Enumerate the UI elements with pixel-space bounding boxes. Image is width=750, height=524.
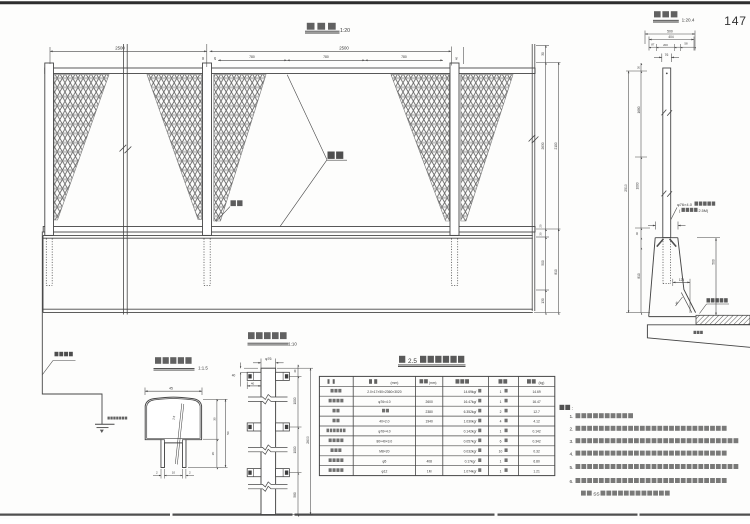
svg-text:30: 30 — [212, 417, 216, 421]
svg-text:1940: 1940 — [426, 420, 434, 424]
svg-text:2.5M): 2.5M) — [699, 209, 709, 213]
svg-text:0.32: 0.32 — [533, 449, 540, 453]
svg-text:1: 1 — [500, 390, 502, 394]
svg-text:1M: 1M — [427, 469, 432, 473]
svg-text:(kg): (kg) — [539, 381, 545, 385]
svg-text:0.342: 0.342 — [532, 440, 540, 444]
svg-text:2.0×17×50×2360×3020: 2.0×17×50×2360×3020 — [367, 390, 401, 394]
svg-text:810: 810 — [554, 269, 558, 275]
svg-text:1:20: 1:20 — [340, 28, 350, 34]
svg-text:408: 408 — [426, 459, 432, 463]
svg-text:0.17kg/: 0.17kg/ — [465, 459, 476, 463]
svg-text:14.69kg/: 14.69kg/ — [464, 390, 477, 394]
svg-text:500: 500 — [712, 259, 716, 265]
svg-text:2: 2 — [500, 410, 502, 414]
svg-text:(mm): (mm) — [391, 381, 399, 385]
svg-text:40×2.0: 40×2.0 — [379, 420, 389, 424]
svg-text:45: 45 — [169, 386, 173, 390]
svg-text:500: 500 — [541, 260, 545, 266]
svg-text:87: 87 — [651, 43, 655, 47]
svg-text:1000: 1000 — [293, 446, 297, 453]
svg-text:20: 20 — [211, 452, 215, 456]
svg-text:1:10: 1:10 — [288, 341, 297, 346]
svg-text:2510: 2510 — [624, 184, 628, 192]
svg-text:130: 130 — [541, 298, 545, 304]
svg-text:1:20.4: 1:20.4 — [682, 18, 695, 23]
svg-text:14.69: 14.69 — [532, 390, 540, 394]
svg-text:780: 780 — [323, 55, 329, 59]
svg-text:2500: 2500 — [115, 46, 125, 51]
svg-text:6.352kg/: 6.352kg/ — [464, 410, 477, 414]
svg-text:40: 40 — [293, 369, 297, 373]
svg-text:1.074kg/: 1.074kg/ — [464, 469, 477, 473]
svg-text:10: 10 — [499, 449, 503, 453]
svg-text:2.5: 2.5 — [408, 358, 417, 365]
svg-text:16.47kg/: 16.47kg/ — [464, 400, 477, 404]
svg-text:780: 780 — [249, 55, 255, 59]
svg-text:(mm): (mm) — [429, 381, 436, 385]
svg-text::: : — [572, 406, 573, 412]
svg-text:76: 76 — [665, 53, 669, 57]
svg-text:780: 780 — [401, 55, 407, 59]
svg-text:20: 20 — [213, 57, 217, 61]
svg-text:1.21: 1.21 — [533, 469, 540, 473]
svg-text:50: 50 — [226, 431, 230, 435]
svg-text:404: 404 — [668, 35, 674, 39]
svg-text:SS: SS — [593, 491, 599, 497]
svg-text:1: 1 — [500, 430, 502, 434]
svg-text:4.: 4. — [570, 451, 574, 457]
svg-text:16.47: 16.47 — [532, 400, 540, 404]
svg-text:30: 30 — [539, 232, 543, 236]
svg-text:φ76×4.0: φ76×4.0 — [677, 202, 693, 207]
svg-text:0.142: 0.142 — [532, 430, 540, 434]
svg-text:1000: 1000 — [293, 397, 297, 404]
svg-text:6: 6 — [500, 440, 502, 444]
svg-text:40: 40 — [232, 374, 236, 378]
svg-text:12.7: 12.7 — [533, 410, 540, 414]
svg-text:2630: 2630 — [541, 142, 545, 149]
svg-text:810: 810 — [637, 273, 641, 279]
svg-text:10: 10 — [172, 471, 176, 475]
svg-text:2100: 2100 — [554, 142, 558, 149]
svg-text:1680: 1680 — [637, 106, 641, 113]
svg-text:4.12: 4.12 — [533, 420, 540, 424]
svg-text:1: 1 — [500, 400, 502, 404]
svg-text:40: 40 — [635, 232, 639, 236]
svg-text:500: 500 — [667, 29, 673, 33]
svg-text:φ76×4.0: φ76×4.0 — [378, 430, 390, 434]
svg-text:2.: 2. — [570, 427, 574, 433]
svg-text:1.030kg/: 1.030kg/ — [464, 420, 477, 424]
svg-text:2600: 2600 — [426, 400, 434, 404]
svg-text:φ5: φ5 — [382, 459, 386, 463]
svg-text:40: 40 — [454, 57, 458, 61]
svg-text:2600: 2600 — [306, 436, 310, 444]
svg-text:0.057kg/: 0.057kg/ — [464, 440, 477, 444]
svg-text:5.: 5. — [570, 465, 574, 471]
svg-text:147: 147 — [724, 14, 747, 28]
svg-text:2500: 2500 — [339, 46, 349, 51]
svg-text:40: 40 — [251, 381, 255, 385]
svg-text:580: 580 — [293, 492, 297, 498]
svg-text:1000: 1000 — [636, 182, 640, 189]
svg-text:φ12: φ12 — [381, 469, 387, 473]
svg-text:3.: 3. — [570, 439, 574, 445]
svg-text:6.80: 6.80 — [533, 459, 540, 463]
svg-text:1.: 1. — [570, 414, 574, 420]
svg-text:1: 1 — [500, 459, 502, 463]
svg-text:30: 30 — [637, 66, 641, 70]
svg-text:40: 40 — [201, 57, 205, 61]
svg-text:2380: 2380 — [426, 410, 434, 414]
svg-text:0.142kg/: 0.142kg/ — [464, 430, 477, 434]
svg-text:1:1.5: 1:1.5 — [198, 365, 208, 370]
svg-text:φ76×4.0: φ76×4.0 — [378, 400, 390, 404]
svg-text:6.: 6. — [570, 479, 574, 485]
svg-text:1: 1 — [500, 469, 502, 473]
svg-text:200: 200 — [663, 43, 668, 47]
svg-text:125: 125 — [679, 278, 685, 282]
svg-text:φ76: φ76 — [265, 357, 271, 361]
svg-text:30: 30 — [541, 52, 545, 56]
svg-text:80×40×3.0: 80×40×3.0 — [377, 440, 393, 444]
svg-text:20: 20 — [539, 224, 543, 228]
svg-text:58: 58 — [684, 42, 688, 46]
svg-text:0.032kg/: 0.032kg/ — [464, 449, 477, 453]
svg-text:4: 4 — [500, 420, 502, 424]
svg-text:M8×20: M8×20 — [379, 449, 389, 453]
